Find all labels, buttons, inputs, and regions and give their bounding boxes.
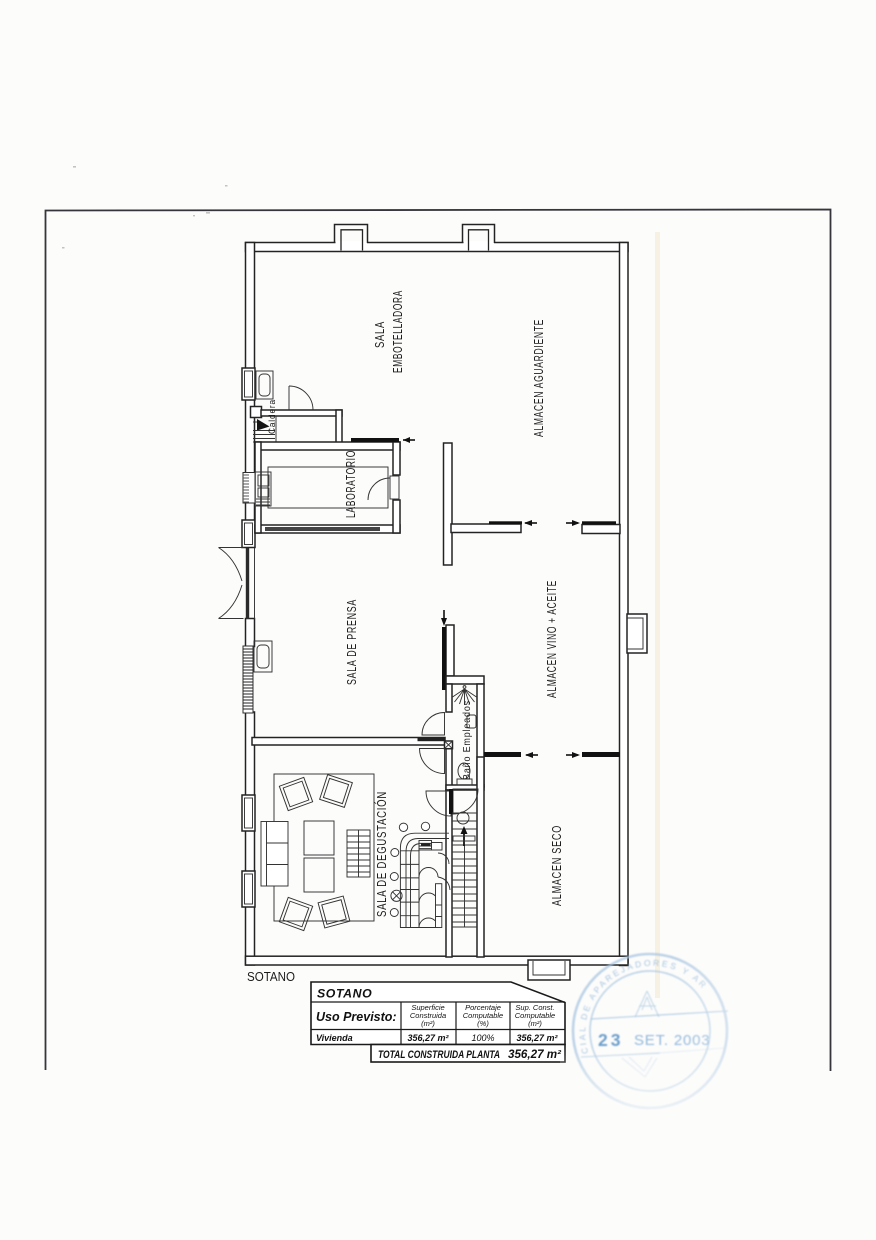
svg-text:SOTANO: SOTANO [247, 969, 295, 984]
svg-text:356,27 m²: 356,27 m² [516, 1033, 558, 1043]
svg-text:Uso Previsto:: Uso Previsto: [316, 1010, 397, 1024]
svg-text:(m²): (m²) [528, 1019, 542, 1028]
svg-text:SALA DE PRENSA: SALA DE PRENSA [345, 599, 359, 685]
svg-text:(%): (%) [477, 1019, 489, 1028]
svg-text:EMBOTELLADORA: EMBOTELLADORA [391, 290, 405, 373]
svg-text:SOTANO: SOTANO [317, 987, 372, 1001]
svg-text:ALMACEN AGUARDIENTE: ALMACEN AGUARDIENTE [532, 319, 546, 437]
svg-text:ALMACEN VINO + ACEITE: ALMACEN VINO + ACEITE [545, 580, 559, 698]
svg-text:Caldera: Caldera [267, 399, 278, 434]
svg-text:100%: 100% [471, 1033, 494, 1043]
svg-text:(m²): (m²) [421, 1019, 435, 1028]
svg-text:Vivienda: Vivienda [316, 1033, 353, 1043]
svg-text:SALA DE DEGUSTACIÓN: SALA DE DEGUSTACIÓN [374, 791, 389, 917]
svg-text:ALMACEN SECO: ALMACEN SECO [550, 825, 564, 906]
svg-text:LABORATORIO: LABORATORIO [344, 450, 358, 518]
svg-text:SALA: SALA [373, 321, 387, 348]
svg-text:356,27 m²: 356,27 m² [508, 1049, 562, 1061]
svg-text:Baño Empleados: Baño Empleados [461, 700, 473, 780]
svg-text:356,27 m²: 356,27 m² [407, 1033, 449, 1043]
svg-text:TOTAL CONSTRUIDA PLANTA: TOTAL CONSTRUIDA PLANTA [378, 1049, 500, 1061]
